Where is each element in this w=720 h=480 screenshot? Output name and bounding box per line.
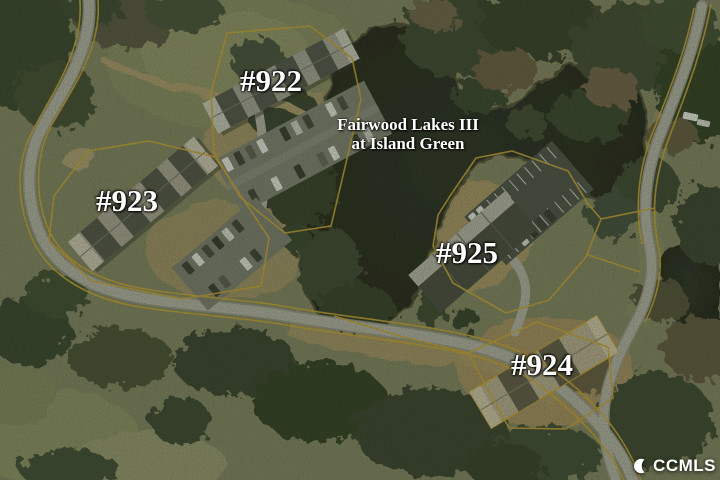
aerial-parcel-map: Fairwood Lakes III at Island Green #922 … <box>0 0 720 480</box>
watermark-text: CCMLS <box>653 456 716 476</box>
crescent-c-icon <box>633 458 649 474</box>
map-title-line1: Fairwood Lakes III <box>337 115 479 134</box>
mls-watermark: CCMLS <box>633 456 716 476</box>
building-label-922: #922 <box>240 65 302 96</box>
grain-overlay <box>0 0 720 480</box>
building-label-924: #924 <box>511 349 573 380</box>
map-title: Fairwood Lakes III at Island Green <box>337 115 479 153</box>
building-label-925: #925 <box>436 237 498 268</box>
building-label-923: #923 <box>96 185 158 216</box>
map-title-line2: at Island Green <box>337 134 479 153</box>
satellite-imagery <box>0 0 720 480</box>
